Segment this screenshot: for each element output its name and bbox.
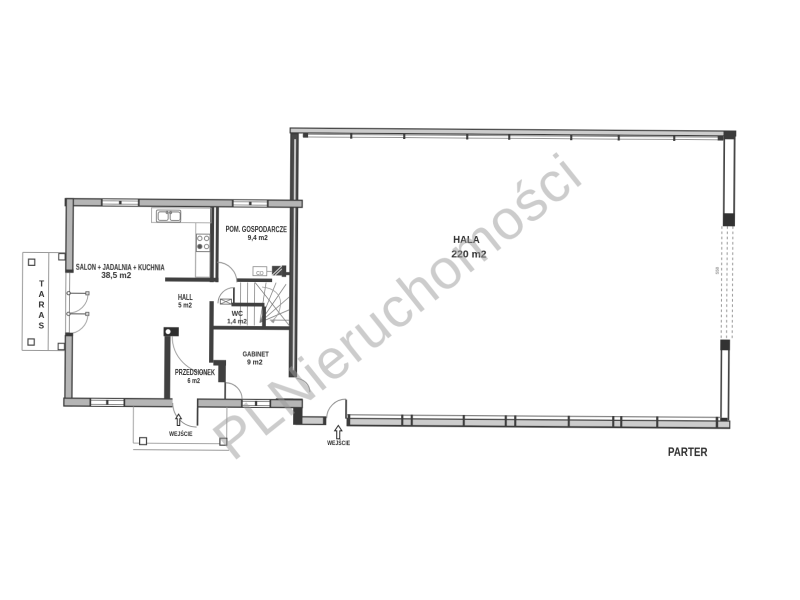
svg-text:38,5 m2: 38,5 m2 (101, 271, 132, 280)
svg-text:WC: WC (232, 311, 243, 318)
svg-text:WEJŚCIE: WEJŚCIE (327, 438, 350, 447)
svg-text:S: S (39, 320, 45, 330)
svg-text:R: R (38, 299, 44, 309)
svg-text:5 m2: 5 m2 (178, 302, 192, 309)
svg-text:558: 558 (715, 266, 720, 274)
svg-text:9,4 m2: 9,4 m2 (248, 233, 268, 242)
svg-text:WEJŚCIE: WEJŚCIE (169, 429, 192, 438)
svg-text:9 m2: 9 m2 (247, 359, 263, 366)
svg-text:6 m2: 6 m2 (187, 378, 200, 385)
svg-text:PRZEDSIONEK: PRZEDSIONEK (175, 368, 215, 377)
svg-text:T: T (39, 278, 44, 288)
svg-text:CO: CO (256, 271, 264, 277)
svg-text:1,4 m2: 1,4 m2 (227, 318, 247, 325)
svg-text:A: A (38, 310, 44, 320)
svg-text:HALL: HALL (178, 293, 193, 302)
svg-text:A: A (38, 289, 44, 299)
svg-text:GABINET: GABINET (243, 349, 270, 358)
svg-text:PARTER: PARTER (668, 445, 708, 459)
